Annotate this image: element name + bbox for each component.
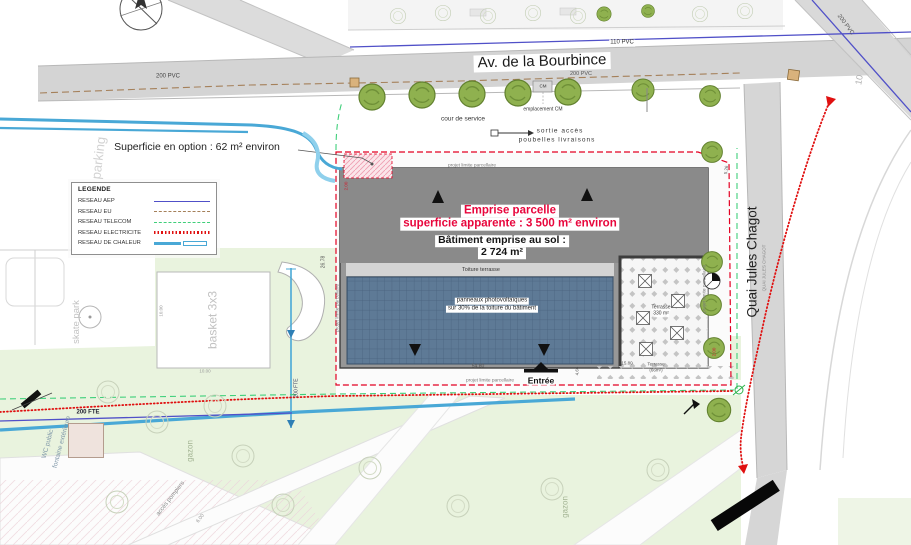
emprise-parcelle-line1: Emprise parcelle <box>461 205 559 218</box>
branch-road-topleft <box>168 0 354 64</box>
dim-10-00-horizontal: 10.00 <box>199 370 210 375</box>
dim-26-78: 26.78 <box>321 256 327 269</box>
skate-park-label: skate park <box>72 300 82 344</box>
legend-item-telecom: RESEAU TELECOM <box>78 217 210 228</box>
dim-15-80: 15.80 <box>621 362 632 367</box>
panneaux-line2: sur 30% de la toiture du bâtiment <box>446 306 538 313</box>
legend-item-aep: RESEAU AEP <box>78 196 210 207</box>
emprise-parcelle-line2: superficie apparente : 3 500 m² environ <box>400 218 619 231</box>
projet-limite-bottom: projet limite parcellaire <box>466 378 514 383</box>
solar-panels <box>347 277 613 364</box>
batiment-emprise-line1: Bâtiment emprise au sol : <box>435 235 569 247</box>
legend-label-eu: RESEAU EU <box>78 209 112 215</box>
terrasse-66-value: (66m²) <box>649 369 662 374</box>
sortie-line1: sortie accès <box>537 127 584 134</box>
legend: LEGENDE RESEAU AEP RESEAU EU RESEAU TELE… <box>71 182 217 255</box>
legend-label-chaleur: RESEAU DE CHALEUR <box>78 240 141 246</box>
option-area-hatch <box>298 150 392 178</box>
dim-54-80: 54.80 <box>472 364 485 370</box>
projet-limite-right: projet limite parcellaire <box>702 265 707 313</box>
panneaux-line1: panneaux photovoltaïques <box>455 298 529 305</box>
legend-line-electricite <box>154 231 210 234</box>
cm-label: CM <box>540 85 547 90</box>
legend-item-chaleur: RESEAU DE CHALEUR <box>78 238 210 249</box>
quai-name: Quai Jules Chagot <box>746 206 761 317</box>
legend-label-electricite: RESEAU ELECTRICITE <box>78 230 141 236</box>
pipe-200fte-west: 200 FTE <box>76 410 99 417</box>
legend-line-aep <box>154 201 210 202</box>
legend-line-chaleur <box>154 241 210 246</box>
legend-title: LEGENDE <box>78 186 210 193</box>
legend-label-telecom: RESEAU TELECOM <box>78 219 131 225</box>
compass-icon <box>120 0 162 30</box>
projet-limite-top: projet limite parcellaire <box>448 163 496 168</box>
dim-2-00-topleft: 2.00 <box>345 182 350 191</box>
emplacement-cm-label: emplacement CM <box>523 107 562 113</box>
terrasse-330-value: 330 m² <box>653 311 669 317</box>
toiture-terrasse-label: Toiture terrasse <box>462 267 500 273</box>
sortie-line2: poubelles livraisons <box>519 136 596 143</box>
pipe-200pvc-mid: 200 PVC <box>570 71 592 77</box>
wc-building <box>68 423 104 458</box>
legend-label-aep: RESEAU AEP <box>78 198 115 204</box>
projet-limite-left: projet limite parcellaire <box>335 284 340 332</box>
entree-label: Entrée <box>527 376 555 385</box>
legend-item-eu: RESEAU EU <box>78 207 210 218</box>
north-plaza <box>348 0 785 30</box>
dim-5-26: 5.26 <box>724 165 730 174</box>
dim-10-00-vertical: 10.00 <box>160 305 165 316</box>
basket-label: basket 3x3 <box>206 291 219 349</box>
gazon-label-center: gazon <box>562 496 571 518</box>
sortie-arrow-icon <box>491 130 534 136</box>
legend-line-telecom <box>154 222 210 223</box>
quai-name-small: QUAI JULES CHAGOT <box>763 245 768 292</box>
cour-de-service-label: cour de service <box>441 115 485 122</box>
street-number: 10 <box>854 74 865 86</box>
batiment-emprise-line2: 2 724 m² <box>478 247 526 259</box>
pipe-200fte-vertical: 200 FTE <box>294 378 300 397</box>
legend-item-electricite: RESEAU ELECTRICITE <box>78 228 210 239</box>
site-plan-drawing <box>0 0 911 545</box>
legend-line-eu <box>154 211 210 212</box>
option-area-label: Superficie en option : 62 m² environ <box>112 142 282 154</box>
pipe-110pvc: 110 PVC <box>609 40 635 47</box>
dim-2-00-right: 2.00 <box>713 348 718 357</box>
dim-4-66: 4.66 <box>576 367 581 376</box>
pipe-200pvc-west: 200 PVC <box>156 74 180 81</box>
site-plan: Av. de la Bourbince Quai Jules Chagot QU… <box>0 0 911 545</box>
gazon-label-west: gazon <box>187 440 196 462</box>
